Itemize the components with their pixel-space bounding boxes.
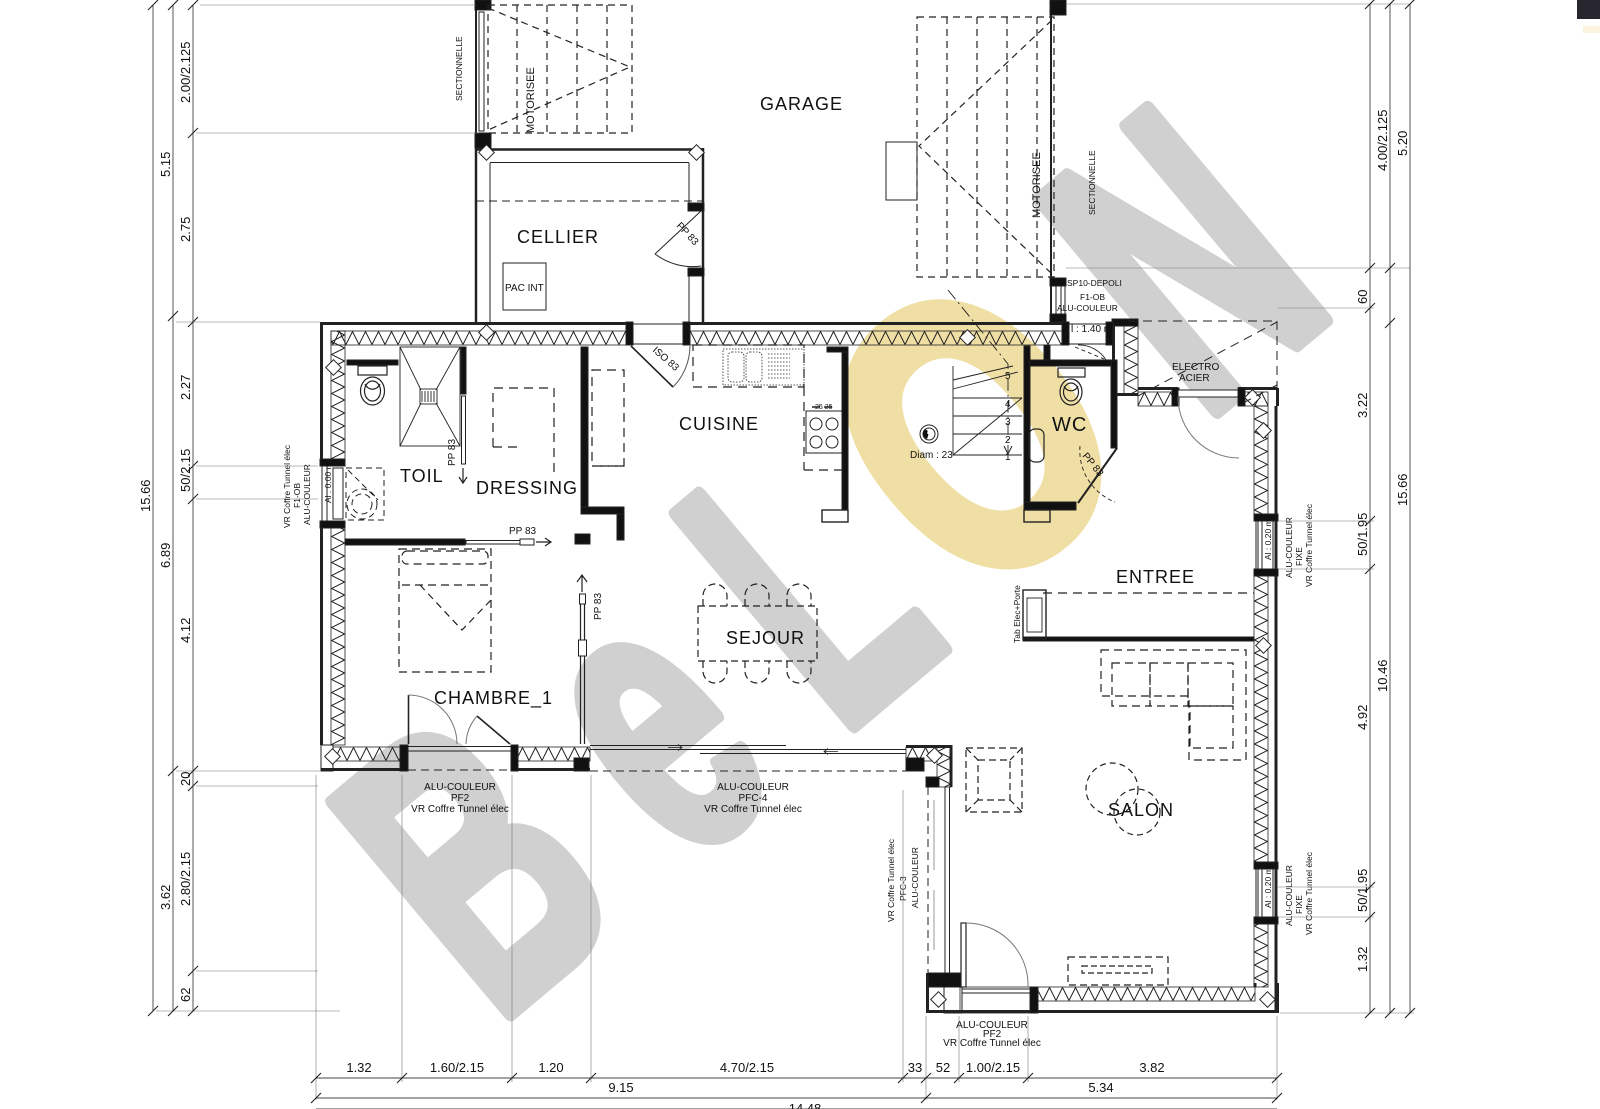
svg-text:4.92: 4.92 [1355,705,1370,730]
svg-text:SP10-DEPOLI: SP10-DEPOLI [1067,278,1122,288]
svg-text:DRESSING: DRESSING [476,478,578,498]
svg-text:Al : 0.20 m: Al : 0.20 m [1263,867,1273,908]
svg-text:CELLIER: CELLIER [517,227,599,247]
svg-text:ENTREE: ENTREE [1116,567,1195,587]
svg-text:1.00/2.15: 1.00/2.15 [966,1060,1020,1075]
svg-text:50/1.95: 50/1.95 [1355,869,1370,912]
svg-text:3.62: 3.62 [158,885,173,910]
svg-text:VR Coffre Tunnel élec: VR Coffre Tunnel élec [943,1038,1041,1049]
svg-text:SEJOUR: SEJOUR [726,628,805,648]
svg-text:Al : 0.00 m: Al : 0.00 m [323,462,333,503]
svg-text:WC: WC [1052,414,1087,436]
svg-text:Tab Elec+Porte: Tab Elec+Porte [1012,585,1022,643]
svg-text:5.34: 5.34 [1088,1080,1113,1095]
svg-text:4.12: 4.12 [178,618,193,643]
svg-text:1.32: 1.32 [346,1060,371,1075]
svg-text:ALU-COULEUR: ALU-COULEUR [717,782,789,793]
svg-text:25 25: 25 25 [815,404,833,411]
svg-text:PP 83: PP 83 [447,439,458,466]
svg-text:SECTIONNELLE: SECTIONNELLE [454,36,464,101]
svg-text:VR Coffre Tunnel élec: VR Coffre Tunnel élec [282,444,292,528]
svg-text:GARAGE: GARAGE [760,94,843,114]
svg-text:FIXE: FIXE [1294,547,1304,566]
svg-text:Diam : 23: Diam : 23 [910,450,953,461]
svg-text:ELECTRO: ELECTRO [1172,362,1219,373]
svg-text:F1-OB: F1-OB [1080,292,1105,302]
svg-text:3.22: 3.22 [1355,393,1370,418]
svg-text:l : 1.40 m: l : 1.40 m [1071,324,1112,335]
svg-text:9.15: 9.15 [608,1080,633,1095]
svg-text:10.46: 10.46 [1375,659,1390,692]
svg-text:TOIL: TOIL [400,466,444,486]
svg-text:ACIER: ACIER [1179,373,1210,384]
svg-text:2.00/2.125: 2.00/2.125 [178,42,193,103]
svg-text:FIXE: FIXE [1294,895,1304,914]
svg-text:3: 3 [1005,417,1011,428]
svg-text:62: 62 [178,988,193,1002]
svg-text:2: 2 [1005,435,1011,446]
svg-text:1.20: 1.20 [538,1060,563,1075]
svg-text:ALU-COULEUR: ALU-COULEUR [424,782,496,793]
svg-text:VR Coffre Tunnel élec: VR Coffre Tunnel élec [411,804,509,815]
svg-text:CUISINE: CUISINE [679,414,759,434]
svg-text:ALU-COULEUR: ALU-COULEUR [910,847,920,908]
svg-text:50/1.95: 50/1.95 [1355,513,1370,556]
svg-text:2.75: 2.75 [178,217,193,242]
svg-text:VR Coffre Tunnel élec: VR Coffre Tunnel élec [704,804,802,815]
svg-text:PF2: PF2 [451,793,470,804]
svg-text:2.80/2.15: 2.80/2.15 [178,852,193,906]
svg-text:60: 60 [1355,290,1370,304]
svg-text:SALON: SALON [1108,800,1174,820]
svg-text:52: 52 [936,1060,950,1075]
svg-text:14.48: 14.48 [789,1101,822,1109]
svg-text:VR Coffre Tunnel élec: VR Coffre Tunnel élec [1304,503,1314,587]
svg-text:20: 20 [178,772,193,786]
svg-text:50/2.15: 50/2.15 [178,449,193,492]
svg-text:33: 33 [908,1060,922,1075]
svg-text:4: 4 [1005,399,1011,410]
svg-text:ALU-COULEUR: ALU-COULEUR [1057,303,1118,313]
svg-text:MOTORISEE: MOTORISEE [525,67,537,133]
svg-text:MOTORISEE: MOTORISEE [1031,152,1043,218]
svg-text:1: 1 [1005,452,1011,463]
svg-text:PAC INT: PAC INT [505,283,544,294]
svg-text:3.82: 3.82 [1139,1060,1164,1075]
svg-text:4.00/2.125: 4.00/2.125 [1375,110,1390,171]
svg-text:VR Coffre Tunnel élec: VR Coffre Tunnel élec [1304,851,1314,935]
svg-text:2.27: 2.27 [178,375,193,400]
svg-text:6.89: 6.89 [158,543,173,568]
svg-text:SECTIONNELLE: SECTIONNELLE [1087,150,1097,215]
svg-text:VR Coffre Tunnel élec: VR Coffre Tunnel élec [886,838,896,922]
svg-text:1.32: 1.32 [1355,947,1370,972]
svg-text:Al : 0.20 m: Al : 0.20 m [1263,519,1273,560]
svg-text:PFC-4: PFC-4 [739,793,768,804]
svg-text:5.20: 5.20 [1395,131,1410,156]
svg-text:PP 83: PP 83 [593,593,604,620]
svg-text:PP 83: PP 83 [509,526,536,537]
svg-text:15.66: 15.66 [1395,473,1410,506]
svg-text:ALU-COULEUR: ALU-COULEUR [302,464,312,525]
svg-text:4.70/2.15: 4.70/2.15 [720,1060,774,1075]
svg-text:CHAMBRE_1: CHAMBRE_1 [434,688,553,709]
svg-text:5.15: 5.15 [158,152,173,177]
svg-text:15.66: 15.66 [138,479,153,512]
svg-text:1.60/2.15: 1.60/2.15 [430,1060,484,1075]
svg-text:5: 5 [1005,371,1011,382]
svg-text:F1-OB: F1-OB [292,483,302,508]
